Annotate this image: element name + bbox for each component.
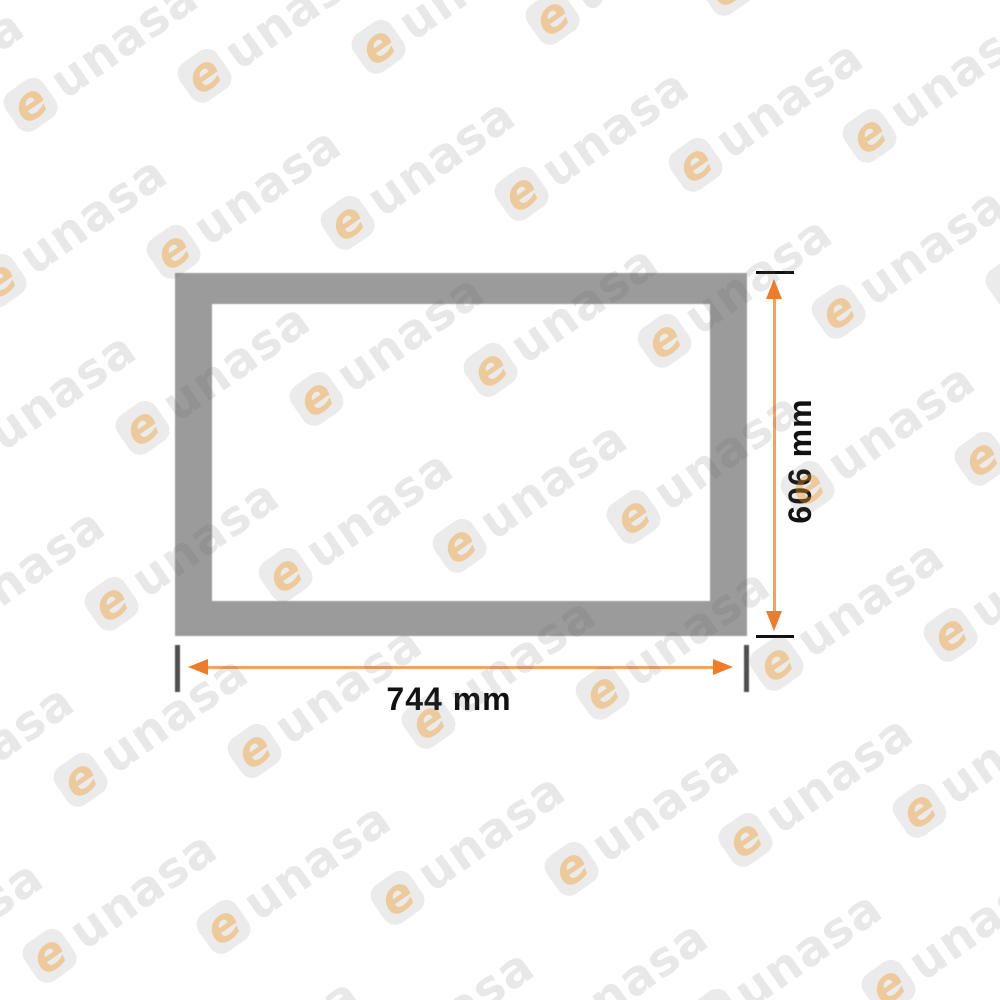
eunasa-logo-e: e [861,957,913,1000]
eunasa-word-rest: unasa [409,765,573,900]
height-dim-line [773,297,776,613]
width-dim-line [203,666,717,669]
watermark-eunasa: eunasa [837,3,1000,169]
watermark-eunasa: eunasa [0,676,82,842]
eunasa-logo-e: e [687,986,739,1000]
eunasa-logo-e: e [811,282,863,338]
watermark-eunasa: eunasa [980,150,1000,316]
eunasa-word-rest: unasa [204,970,368,1000]
eunasa-logo-e: e [923,605,975,661]
eunasa-logo-e: e [320,193,372,249]
eunasa-word-rest: unasa [11,148,175,283]
watermark-eunasa: eunasa [806,179,1000,345]
watermark-eunasa: eunasa [949,326,1000,492]
eunasa-word-rest: unasa [850,179,1000,314]
eunasa-logo-e: e [544,839,596,895]
eunasa-word-rest: unasa [881,3,1000,138]
eunasa-word-rest: unasa [552,912,716,1000]
eunasa-logo-e: e [146,222,198,278]
eunasa-word-rest: unasa [235,794,399,929]
eunasa-logo-tile-icon: e [366,866,430,930]
watermark-eunasa: eunasa [539,736,747,902]
eunasa-logo-tile-icon: e [695,0,759,21]
width-dim-label: 744 mm [349,681,549,717]
watermark-eunasa: eunasa [887,678,1000,844]
width-ext-line-left [175,645,180,692]
eunasa-logo-e: e [84,574,136,630]
gasket-frame [175,273,747,636]
eunasa-word-rest: unasa [185,119,349,254]
watermark-eunasa: eunasa [334,941,542,1000]
eunasa-word-rest: unasa [61,823,225,958]
eunasa-word-rest: unasa [0,500,113,635]
watermark-eunasa: eunasa [0,324,144,490]
watermark-eunasa: eunasa [315,90,523,256]
watermark-eunasa: eunasa [0,0,206,138]
eunasa-logo-tile-icon: e [111,396,175,460]
eunasa-logo-e: e [0,251,24,307]
eunasa-logo-tile-icon: e [316,191,380,255]
eunasa-logo-e: e [842,106,894,162]
eunasa-word-rest: unasa [900,854,1000,989]
eunasa-word-rest: unasa [216,0,380,78]
eunasa-logo-tile-icon: e [0,73,63,137]
eunasa-logo-tile-icon: e [683,984,747,1000]
eunasa-logo-tile-icon: e [18,924,82,988]
watermark-eunasa: eunasa [489,61,697,227]
eunasa-logo-e: e [196,897,248,953]
eunasa-logo-e: e [3,75,55,131]
eunasa-logo-e: e [718,810,770,866]
height-dim-arrow-up-icon [766,279,782,299]
eunasa-word-rest: unasa [378,941,542,1000]
eunasa-logo-tile-icon: e [807,280,871,344]
watermark-eunasa: eunasa [713,707,921,873]
width-dim-arrow-right-icon [713,659,733,675]
eunasa-word-rest: unasa [583,736,747,871]
eunasa-logo-e: e [22,926,74,982]
eunasa-word-rest: unasa [0,852,51,987]
watermark-eunasa: eunasa [346,0,554,80]
eunasa-logo-tile-icon: e [745,632,809,696]
eunasa-logo-e: e [53,750,105,806]
eunasa-logo-e: e [749,634,801,690]
eunasa-logo-tile-icon: e [838,104,902,168]
eunasa-logo-e: e [668,135,720,191]
product-diagram-image: 606 mm 744 mm eunasaeunasaeunasaeunasaeu… [0,0,1000,1000]
eunasa-word-rest: unasa [962,502,1000,637]
eunasa-word-rest: unasa [993,326,1000,461]
width-ext-line-right [744,645,749,692]
eunasa-logo-e: e [177,46,229,102]
height-dim-label: 606 mm [782,391,818,531]
watermark-eunasa: eunasa [17,823,225,989]
eunasa-logo-e: e [525,0,577,44]
eunasa-logo-tile-icon: e [192,895,256,959]
watermark-eunasa: eunasa [172,0,380,109]
eunasa-word-rest: unasa [390,0,554,49]
eunasa-word-rest: unasa [788,531,952,666]
watermark-eunasa: eunasa [0,852,51,1000]
eunasa-word-rest: unasa [0,1,32,136]
eunasa-word-rest: unasa [0,324,144,459]
eunasa-logo-e: e [115,398,167,454]
watermark-eunasa: eunasa [365,765,573,931]
eunasa-logo-tile-icon: e [173,44,237,108]
watermark-eunasa: eunasa [856,854,1000,1000]
eunasa-logo-tile-icon: e [571,661,635,725]
eunasa-logo-tile-icon: e [347,15,411,79]
watermark-eunasa: eunasa [694,0,902,22]
eunasa-logo-e: e [699,0,751,15]
watermark-eunasa: eunasa [141,119,349,285]
eunasa-logo-e: e [227,721,279,777]
height-dim-tick-bottom [756,635,794,638]
eunasa-logo-e: e [954,429,1000,485]
watermark-eunasa: eunasa [0,1,32,167]
eunasa-logo-e: e [370,868,422,924]
eunasa-word-rest: unasa [931,678,1000,813]
eunasa-logo-tile-icon: e [857,955,921,1000]
eunasa-word-rest: unasa [819,355,983,490]
eunasa-logo-tile-icon: e [540,837,604,901]
eunasa-logo-e: e [351,17,403,73]
eunasa-logo-tile-icon: e [919,603,983,667]
watermark-eunasa: eunasa [0,177,1,343]
eunasa-word-rest: unasa [564,0,728,20]
watermark-eunasa: eunasa [0,500,113,666]
watermark-eunasa: eunasa [508,912,716,1000]
eunasa-logo-tile-icon: e [950,427,1000,491]
eunasa-logo-e: e [892,781,944,837]
watermark-eunasa: eunasa [663,32,871,198]
watermark-eunasa: eunasa [682,883,890,1000]
eunasa-logo-tile-icon: e [0,425,1,489]
eunasa-logo-tile-icon: e [664,133,728,197]
eunasa-word-rest: unasa [707,32,871,167]
watermark-eunasa: eunasa [520,0,728,51]
eunasa-logo-tile-icon: e [0,249,32,313]
height-dim-tick-top [756,271,794,274]
eunasa-word-rest: unasa [0,676,82,811]
eunasa-logo-tile-icon: e [888,779,952,843]
eunasa-logo-e: e [985,253,1000,309]
watermark-eunasa: eunasa [0,148,175,314]
eunasa-word-rest: unasa [42,0,206,107]
watermark-eunasa: eunasa [918,502,1000,668]
eunasa-logo-tile-icon: e [981,251,1000,315]
eunasa-logo-e: e [575,663,627,719]
width-dim-arrow-left-icon [188,659,208,675]
eunasa-logo-tile-icon: e [521,0,585,50]
eunasa-word-rest: unasa [0,177,1,312]
eunasa-word-rest: unasa [757,707,921,842]
eunasa-word-rest: unasa [533,61,697,196]
eunasa-logo-tile-icon: e [490,162,554,226]
eunasa-logo-tile-icon: e [223,719,287,783]
eunasa-logo-tile-icon: e [49,748,113,812]
watermark-eunasa: eunasa [48,647,256,813]
watermark-eunasa: eunasa [191,794,399,960]
eunasa-logo-tile-icon: e [80,572,144,636]
eunasa-word-rest: unasa [726,883,890,1000]
height-dim-arrow-down-icon [766,611,782,631]
eunasa-word-rest: unasa [359,90,523,225]
watermark-eunasa: eunasa [160,970,368,1000]
eunasa-logo-tile-icon: e [714,808,778,872]
eunasa-logo-e: e [494,164,546,220]
